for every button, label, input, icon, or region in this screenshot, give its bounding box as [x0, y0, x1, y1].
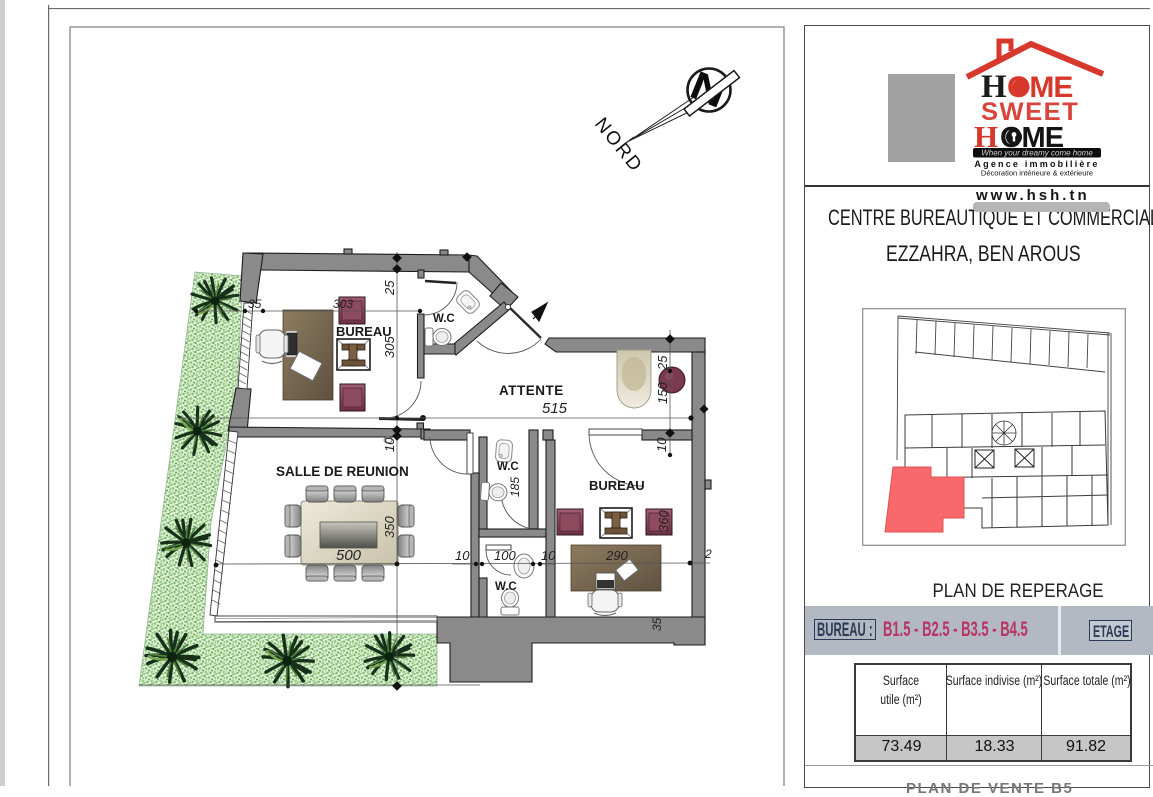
svg-text:W.C: W.C [495, 581, 517, 593]
svg-text:10: 10 [541, 548, 556, 563]
svg-text:10: 10 [455, 548, 470, 563]
svg-text:ATTENTE: ATTENTE [499, 383, 564, 398]
svg-text:360: 360 [656, 510, 671, 532]
svg-text:SALLE DE REUNION: SALLE DE REUNION [276, 464, 409, 479]
svg-text:515: 515 [542, 400, 568, 417]
svg-text:25: 25 [382, 280, 397, 296]
svg-text:500: 500 [336, 547, 362, 564]
svg-text:2: 2 [704, 547, 712, 561]
svg-text:290: 290 [605, 548, 628, 563]
svg-text:When your dreamy come home: When your dreamy come home [981, 149, 1093, 158]
svg-text:BUREAU: BUREAU [589, 478, 645, 493]
svg-text:25: 25 [655, 355, 670, 371]
svg-text:185: 185 [508, 477, 522, 497]
svg-text:BUREAU: BUREAU [336, 324, 392, 339]
svg-text:100: 100 [494, 548, 516, 563]
svg-text:35: 35 [650, 617, 664, 631]
svg-text:35: 35 [248, 297, 262, 311]
svg-text:W.C: W.C [433, 313, 455, 325]
svg-text:10: 10 [654, 437, 669, 452]
svg-text:10: 10 [382, 437, 397, 452]
svg-text:W.C: W.C [497, 461, 519, 473]
svg-text:Agence immobilière: Agence immobilière [974, 159, 1099, 169]
svg-text:303: 303 [333, 297, 353, 311]
svg-text:Décoration intérieure & extéri: Décoration intérieure & extérieure [981, 169, 1093, 178]
svg-text:150: 150 [655, 382, 670, 404]
svg-text:350: 350 [382, 516, 397, 538]
svg-text:NORD: NORD [590, 114, 647, 177]
